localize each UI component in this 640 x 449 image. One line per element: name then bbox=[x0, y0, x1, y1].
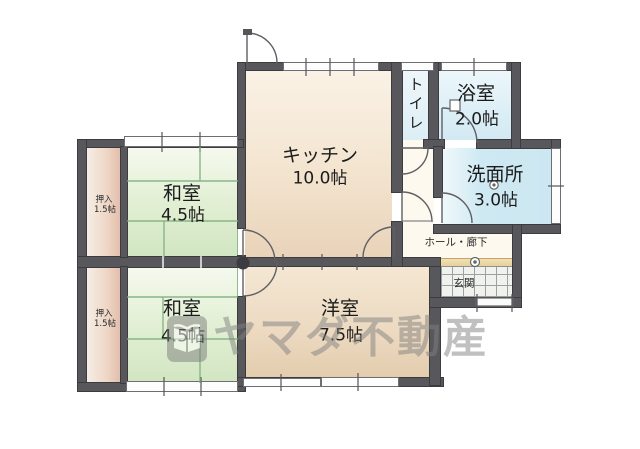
entrance-tile-floor bbox=[440, 266, 513, 298]
label-japanese-lower-name: 和室 bbox=[163, 294, 201, 321]
label-bath-name: 浴室 bbox=[457, 79, 495, 106]
window-japanese-bottom bbox=[126, 381, 238, 392]
window-western-bottom1 bbox=[243, 378, 321, 387]
label-washroom-name: 洗面所 bbox=[466, 160, 523, 187]
wall-middle-divider bbox=[78, 257, 245, 267]
back-door-hinge bbox=[243, 29, 252, 35]
back-door-arc bbox=[247, 33, 277, 63]
wall-closet-div-upper bbox=[121, 147, 127, 257]
label-toilet-name: トイレ bbox=[406, 77, 427, 134]
wall-western-right bbox=[430, 258, 440, 385]
label-kitchen-size: 10.0帖 bbox=[293, 164, 348, 189]
wall-washroom-left bbox=[434, 147, 442, 197]
window-washroom-right bbox=[551, 148, 561, 224]
window-bath-top bbox=[441, 62, 507, 71]
wall-bath-right bbox=[512, 63, 520, 148]
window-western-bottom2 bbox=[321, 377, 399, 387]
label-entrance: 玄関 bbox=[454, 276, 475, 291]
label-closet-upper-size: 1.5帖 bbox=[94, 203, 116, 215]
window-japanese-top bbox=[124, 136, 238, 147]
label-hall: ホール・廊下 bbox=[425, 235, 488, 250]
label-closet-lower-size: 1.5帖 bbox=[94, 317, 116, 329]
label-bath-size: 2.0帖 bbox=[455, 105, 499, 130]
label-western-size: 7.5帖 bbox=[319, 321, 363, 346]
wall-closet-div-lower bbox=[121, 267, 127, 383]
wall-washroom-bottom bbox=[434, 225, 560, 233]
label-washroom-size: 3.0帖 bbox=[474, 186, 518, 211]
wall-corridor-left-bot bbox=[392, 222, 402, 266]
wall-kitchen-bottom bbox=[238, 258, 403, 266]
label-japanese-upper-size: 4.5帖 bbox=[161, 201, 205, 226]
wall-hall-right bbox=[513, 225, 521, 307]
label-western-name: 洋室 bbox=[321, 294, 359, 321]
window-kitchen-top bbox=[283, 62, 379, 71]
floor-plan: キッチン 10.0帖 トイレ 浴室 2.0帖 洗面所 3.0帖 ホール・廊下 玄… bbox=[0, 0, 640, 449]
wall-west-divider-low bbox=[238, 297, 245, 385]
window-toilet-top bbox=[401, 62, 434, 71]
label-japanese-lower-size: 4.5帖 bbox=[161, 322, 205, 347]
wall-hall-bottom-left bbox=[402, 258, 440, 266]
wall-corridor-left-top bbox=[392, 63, 402, 192]
wall-entrance-bottom bbox=[430, 298, 521, 307]
corridor-floor bbox=[402, 140, 434, 225]
wall-bath-left bbox=[429, 63, 438, 148]
